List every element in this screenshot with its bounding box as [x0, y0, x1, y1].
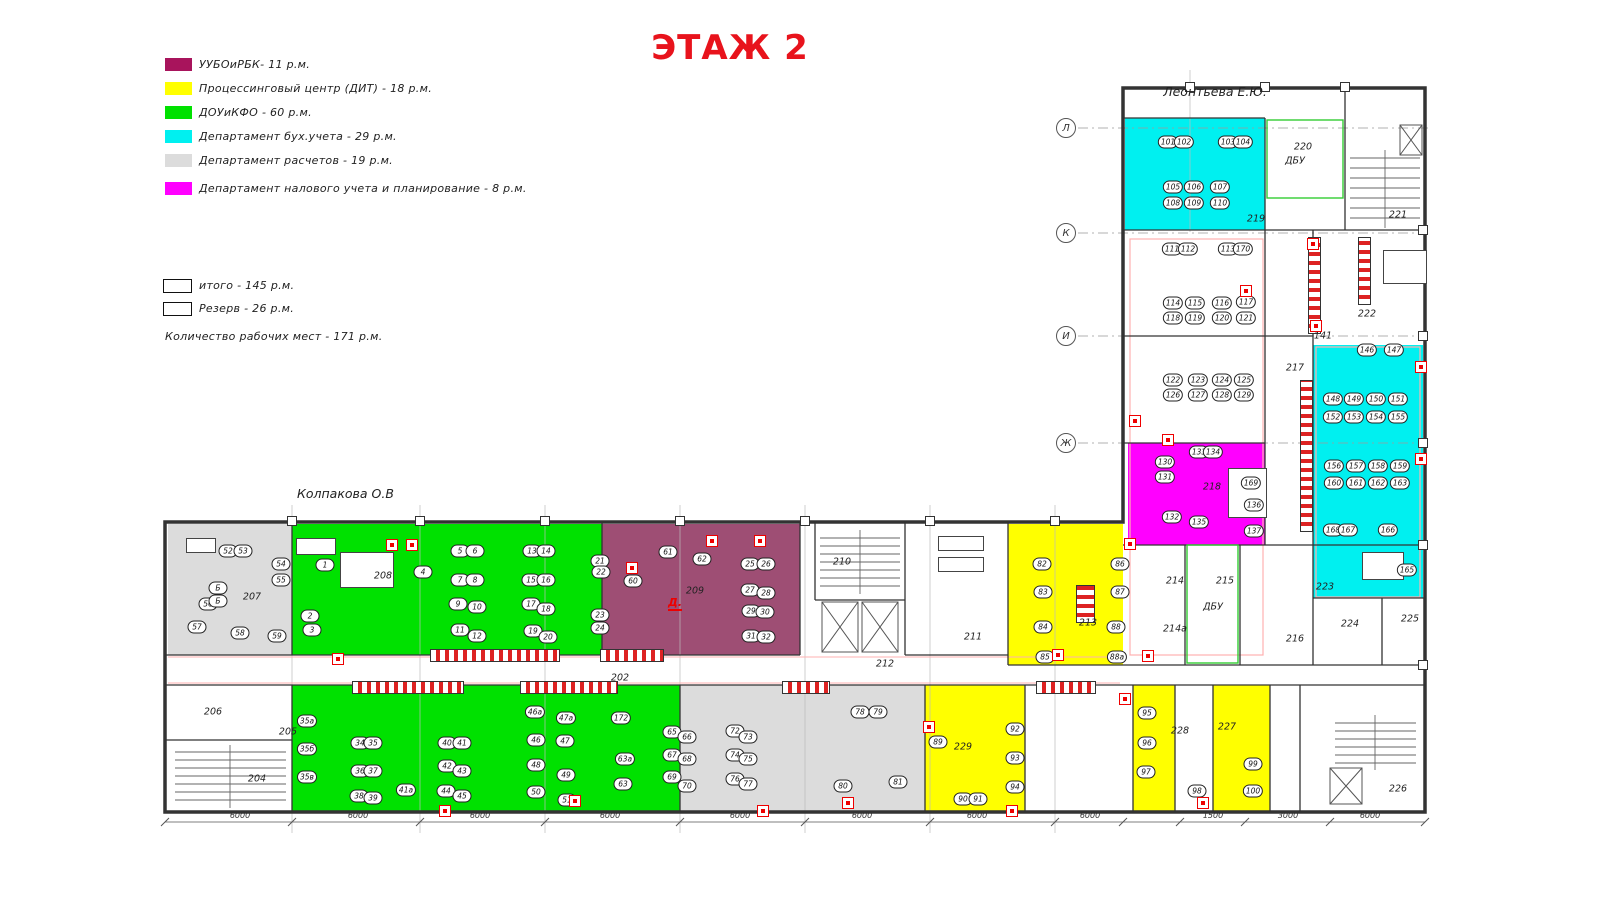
room-number-label: ДБУ — [1203, 602, 1223, 613]
workstation-61[interactable]: 61 — [659, 546, 678, 559]
legend-item: Департамент расчетов - 19 р.м. — [165, 148, 527, 172]
workstation-Б[interactable]: Б — [209, 595, 228, 608]
fire-extinguisher-icon — [757, 805, 769, 817]
workstation-47а[interactable]: 47а — [556, 712, 576, 725]
dimension-label: 6000 — [852, 811, 872, 820]
cabinet-strip — [352, 681, 464, 694]
workstation-104[interactable]: 104 — [1233, 136, 1253, 149]
dimension-label: 6000 — [1080, 811, 1100, 820]
fire-letter-label: Д. — [668, 596, 682, 611]
workstation-75[interactable]: 75 — [739, 753, 758, 766]
room-number-label: 222 — [1358, 309, 1376, 320]
workstation-154[interactable]: 154 — [1366, 411, 1386, 424]
fire-extinguisher-icon — [569, 795, 581, 807]
workstation-39[interactable]: 39 — [364, 792, 383, 805]
room-number-label: 211 — [964, 632, 982, 643]
workstation-49[interactable]: 49 — [557, 769, 576, 782]
room-number-label: 226 — [1389, 784, 1407, 795]
fire-extinguisher-icon — [923, 721, 935, 733]
workstation-114[interactable]: 114 — [1163, 297, 1183, 310]
workstation-41а[interactable]: 41а — [396, 784, 416, 797]
legend-swatch — [165, 82, 192, 95]
workstation-124[interactable]: 124 — [1212, 374, 1232, 387]
furniture — [186, 538, 216, 553]
column-marker — [925, 516, 935, 526]
workstation-96[interactable]: 96 — [1138, 737, 1157, 750]
column-marker — [1418, 438, 1428, 448]
workstation-77[interactable]: 77 — [739, 778, 758, 791]
fire-extinguisher-icon — [1006, 805, 1018, 817]
workstation-43[interactable]: 43 — [453, 765, 472, 778]
legend-item: Департамент налового учета и планировани… — [165, 176, 527, 200]
room-number-label: 207 — [243, 592, 261, 603]
workstation-70[interactable]: 70 — [678, 780, 697, 793]
workstation-121[interactable]: 121 — [1236, 312, 1256, 325]
workstation-62[interactable]: 62 — [693, 553, 712, 566]
legend-swatch — [165, 182, 192, 195]
summary-swatch — [163, 302, 192, 316]
dimension-label: 6000 — [348, 811, 368, 820]
workstation-100[interactable]: 100 — [1243, 785, 1263, 798]
workstation-35б[interactable]: 35б — [297, 743, 317, 756]
workstation-68[interactable]: 68 — [678, 753, 697, 766]
workstation-45[interactable]: 45 — [453, 790, 472, 803]
legend-swatch — [165, 58, 192, 71]
dimension-label: 6000 — [730, 811, 750, 820]
summary-legend: итого - 145 р.м.Резерв - 26 р.м. — [163, 274, 294, 320]
dimension-label: 6000 — [230, 811, 250, 820]
room-number-label: 223 — [1316, 582, 1334, 593]
room-number-label: 216 — [1286, 634, 1304, 645]
dimension-label: 1500 — [1203, 811, 1223, 820]
workstation-80[interactable]: 80 — [834, 780, 853, 793]
page-title: ЭТАЖ 2 — [600, 28, 860, 68]
room-number-label: 215 — [1216, 576, 1234, 587]
workstation-87[interactable]: 87 — [1111, 586, 1130, 599]
workstation-119[interactable]: 119 — [1185, 312, 1205, 325]
workstation-123[interactable]: 123 — [1188, 374, 1208, 387]
fire-extinguisher-icon — [1124, 538, 1136, 550]
column-marker — [675, 516, 685, 526]
room-number-label: 214а — [1163, 624, 1187, 635]
column-marker — [1418, 225, 1428, 235]
room-number-label: 228 — [1171, 726, 1189, 737]
workstation-35в[interactable]: 35в — [297, 771, 317, 784]
room-number-label: 212 — [876, 659, 894, 670]
summary-swatch — [163, 279, 192, 293]
room-number-label: 229 — [954, 742, 972, 753]
summary-label: итого - 145 р.м. — [199, 279, 294, 292]
workstation-35[interactable]: 35 — [364, 737, 383, 750]
workstation-146[interactable]: 146 — [1357, 344, 1377, 357]
fire-extinguisher-icon — [1415, 453, 1427, 465]
workstation-167[interactable]: 167 — [1338, 524, 1358, 537]
workstation-2[interactable]: 2 — [301, 610, 320, 623]
workstation-88[interactable]: 88 — [1107, 621, 1126, 634]
workstation-158[interactable]: 158 — [1368, 460, 1388, 473]
workstation-60[interactable]: 60 — [624, 575, 643, 588]
workstation-147[interactable]: 147 — [1384, 344, 1404, 357]
workstation-159[interactable]: 159 — [1390, 460, 1410, 473]
workstation-41[interactable]: 41 — [453, 737, 472, 750]
workstation-91[interactable]: 91 — [969, 793, 988, 806]
workstation-130[interactable]: 130 — [1155, 456, 1175, 469]
workstation-169[interactable]: 169 — [1241, 477, 1261, 490]
cabinet-strip — [1036, 681, 1096, 694]
workstation-3[interactable]: 3 — [303, 624, 322, 637]
room-number-label: 220 — [1294, 142, 1312, 153]
workstation-172[interactable]: 172 — [611, 712, 631, 725]
workstation-78[interactable]: 78 — [851, 706, 870, 719]
workstation-157[interactable]: 157 — [1346, 460, 1366, 473]
workstation-63а[interactable]: 63а — [615, 753, 635, 766]
workstation-26[interactable]: 26 — [757, 558, 776, 571]
legend-label: УУБОиРБК- 11 р.м. — [199, 58, 310, 71]
workstation-127[interactable]: 127 — [1188, 389, 1208, 402]
workstation-35а[interactable]: 35а — [297, 715, 317, 728]
fire-extinguisher-icon — [386, 539, 398, 551]
room-number-label: 204 — [248, 774, 266, 785]
workstation-48[interactable]: 48 — [527, 759, 546, 772]
workstation-12[interactable]: 12 — [468, 630, 487, 643]
cabinet-strip — [430, 649, 560, 662]
fire-extinguisher-icon — [1142, 650, 1154, 662]
workstation-155[interactable]: 155 — [1388, 411, 1408, 424]
furniture — [938, 536, 984, 551]
room-number-label: 225 — [1401, 614, 1419, 625]
workstation-89[interactable]: 89 — [929, 736, 948, 749]
grid-axis-Ж: Ж — [1056, 433, 1076, 453]
room-number-label: 214 — [1166, 576, 1184, 587]
workstation-152[interactable]: 152 — [1323, 411, 1343, 424]
column-marker — [287, 516, 297, 526]
workstation-128[interactable]: 128 — [1212, 389, 1232, 402]
workstation-81[interactable]: 81 — [889, 776, 908, 789]
column-marker — [1418, 540, 1428, 550]
workstation-148[interactable]: 148 — [1323, 393, 1343, 406]
legend-label: ДОУиКФО - 60 р.м. — [199, 106, 312, 119]
room-number-label: 210 — [833, 557, 851, 568]
room-number-label: 205 — [279, 727, 297, 738]
column-marker — [1050, 516, 1060, 526]
workstation-50[interactable]: 50 — [527, 786, 546, 799]
workstation-55[interactable]: 55 — [272, 574, 291, 587]
furniture — [1383, 250, 1427, 284]
legend-label: Департамент налового учета и планировани… — [199, 182, 527, 195]
workstation-57[interactable]: 57 — [188, 621, 207, 634]
room-number-label: 218 — [1203, 482, 1221, 493]
dimension-label: 6000 — [967, 811, 987, 820]
workstation-98[interactable]: 98 — [1188, 785, 1207, 798]
fire-extinguisher-icon — [842, 797, 854, 809]
cabinet-strip — [600, 649, 664, 662]
workstation-112[interactable]: 112 — [1178, 243, 1198, 256]
fire-extinguisher-icon — [1310, 320, 1322, 332]
summary-label: Резерв - 26 р.м. — [199, 302, 294, 315]
room-number-label: 219 — [1247, 214, 1265, 225]
workstation-132[interactable]: 132 — [1162, 511, 1182, 524]
column-marker — [415, 516, 425, 526]
fire-extinguisher-icon — [754, 535, 766, 547]
fire-extinguisher-icon — [1052, 649, 1064, 661]
workstation-9[interactable]: 9 — [449, 598, 468, 611]
fire-extinguisher-icon — [1197, 797, 1209, 809]
workstation-37[interactable]: 37 — [364, 765, 383, 778]
workstation-110[interactable]: 110 — [1210, 197, 1230, 210]
workstation-107[interactable]: 107 — [1210, 181, 1230, 194]
workstation-99[interactable]: 99 — [1244, 758, 1263, 771]
grid-axis-Л: Л — [1056, 118, 1076, 138]
workstation-151[interactable]: 151 — [1388, 393, 1408, 406]
cabinet-strip — [1300, 380, 1313, 532]
workstation-47[interactable]: 47 — [556, 735, 575, 748]
fire-extinguisher-icon — [332, 653, 344, 665]
fire-extinguisher-icon — [706, 535, 718, 547]
workstation-122[interactable]: 122 — [1163, 374, 1183, 387]
workstation-166[interactable]: 166 — [1378, 524, 1398, 537]
workstation-95[interactable]: 95 — [1138, 707, 1157, 720]
grid-axis-К: К — [1056, 223, 1076, 243]
workstation-94[interactable]: 94 — [1006, 781, 1025, 794]
workstation-118[interactable]: 118 — [1163, 312, 1183, 325]
room-number-label: 217 — [1286, 363, 1304, 374]
owner-label-top: Леонтьева Е.Ю. — [1130, 84, 1300, 99]
legend-label: Департамент бух.учета - 29 р.м. — [199, 130, 397, 143]
workstation-105[interactable]: 105 — [1163, 181, 1183, 194]
workstation-4[interactable]: 4 — [414, 566, 433, 579]
workstation-170[interactable]: 170 — [1233, 243, 1253, 256]
cabinet-strip — [520, 681, 618, 694]
workstation-136[interactable]: 136 — [1244, 499, 1264, 512]
fire-extinguisher-icon — [1307, 238, 1319, 250]
fire-extinguisher-icon — [1129, 415, 1141, 427]
room-number-label: 208 — [374, 571, 392, 582]
workstation-116[interactable]: 116 — [1212, 297, 1232, 310]
workstation-18[interactable]: 18 — [537, 603, 556, 616]
column-marker — [540, 516, 550, 526]
room-number-label: 202 — [611, 673, 629, 684]
workstation-149[interactable]: 149 — [1344, 393, 1364, 406]
cabinet-strip — [1358, 237, 1371, 305]
workstation-115[interactable]: 115 — [1185, 297, 1205, 310]
workstation-8[interactable]: 8 — [466, 574, 485, 587]
workstation-46[interactable]: 46 — [527, 734, 546, 747]
workstation-108[interactable]: 108 — [1163, 197, 1183, 210]
fire-extinguisher-icon — [1162, 434, 1174, 446]
legend-item: Департамент бух.учета - 29 р.м. — [165, 124, 527, 148]
workstation-162[interactable]: 162 — [1368, 477, 1388, 490]
workstation-32[interactable]: 32 — [757, 631, 776, 644]
workstation-10[interactable]: 10 — [468, 601, 487, 614]
workstation-23[interactable]: 23 — [591, 609, 610, 622]
workstation-131[interactable]: 131 — [1155, 471, 1175, 484]
workstation-161[interactable]: 161 — [1346, 477, 1366, 490]
workstation-59[interactable]: 59 — [268, 630, 287, 643]
workstation-150[interactable]: 150 — [1366, 393, 1386, 406]
workstation-120[interactable]: 120 — [1212, 312, 1232, 325]
workstation-63[interactable]: 63 — [614, 778, 633, 791]
room-number-label: 213 — [1079, 618, 1097, 629]
room-number-label: 221 — [1389, 210, 1407, 221]
workstation-79[interactable]: 79 — [869, 706, 888, 719]
legend-item: Процессинговый центр (ДИТ) - 18 р.м. — [165, 76, 527, 100]
workstation-54[interactable]: 54 — [272, 558, 291, 571]
column-marker — [1418, 660, 1428, 670]
room-number-label: ДБУ — [1285, 156, 1305, 167]
fire-extinguisher-icon — [1415, 361, 1427, 373]
dimension-label: 6000 — [600, 811, 620, 820]
room-number-label: 141 — [1314, 331, 1332, 342]
column-marker — [800, 516, 810, 526]
owner-label-left: Колпакова О.В — [297, 486, 394, 501]
workstation-126[interactable]: 126 — [1163, 389, 1183, 402]
workstation-97[interactable]: 97 — [1137, 766, 1156, 779]
floor-plan-canvas: 2072082092102112122132022042052062292282… — [0, 0, 1600, 900]
legend-label: Процессинговый центр (ДИТ) - 18 р.м. — [199, 82, 432, 95]
grid-axis-И: И — [1056, 326, 1076, 346]
total-workplaces-label: Количество рабочих мест - 171 р.м. — [165, 330, 383, 343]
room-number-label: 227 — [1218, 722, 1236, 733]
workstation-106[interactable]: 106 — [1184, 181, 1204, 194]
workstation-92[interactable]: 92 — [1006, 723, 1025, 736]
room-number-label: 224 — [1341, 619, 1359, 630]
workstation-30[interactable]: 30 — [756, 606, 775, 619]
fire-extinguisher-icon — [626, 562, 638, 574]
workstation-163[interactable]: 163 — [1390, 477, 1410, 490]
workstation-134[interactable]: 134 — [1203, 446, 1223, 459]
workstation-153[interactable]: 153 — [1344, 411, 1364, 424]
workstation-58[interactable]: 58 — [231, 627, 250, 640]
dimension-label: 3000 — [1278, 811, 1298, 820]
workstation-156[interactable]: 156 — [1324, 460, 1344, 473]
column-marker — [1340, 82, 1350, 92]
workstation-24[interactable]: 24 — [591, 622, 610, 635]
workstation-1[interactable]: 1 — [316, 559, 335, 572]
fire-extinguisher-icon — [406, 539, 418, 551]
legend: УУБОиРБК- 11 р.м.Процессинговый центр (Д… — [165, 52, 527, 200]
room-number-label: 206 — [204, 707, 222, 718]
workstation-129[interactable]: 129 — [1234, 389, 1254, 402]
column-marker — [1418, 331, 1428, 341]
workstation-125[interactable]: 125 — [1234, 374, 1254, 387]
cabinet-strip — [782, 681, 830, 694]
legend-swatch — [165, 106, 192, 119]
room-number-label: 209 — [686, 586, 704, 597]
workstation-66[interactable]: 66 — [678, 731, 697, 744]
dimension-label: 6000 — [470, 811, 490, 820]
workstation-6[interactable]: 6 — [466, 545, 485, 558]
workstation-14[interactable]: 14 — [537, 545, 556, 558]
furniture — [938, 557, 984, 572]
fire-extinguisher-icon — [1240, 285, 1252, 297]
workstation-137[interactable]: 137 — [1244, 525, 1264, 538]
workstation-20[interactable]: 20 — [539, 631, 558, 644]
legend-swatch — [165, 130, 192, 143]
workstation-83[interactable]: 83 — [1034, 586, 1053, 599]
workstation-165[interactable]: 165 — [1397, 564, 1417, 577]
fire-extinguisher-icon — [439, 805, 451, 817]
workstation-86[interactable]: 86 — [1111, 558, 1130, 571]
summary-item: итого - 145 р.м. — [163, 274, 294, 297]
furniture — [296, 538, 336, 555]
workstation-160[interactable]: 160 — [1324, 477, 1344, 490]
workstation-109[interactable]: 109 — [1184, 197, 1204, 210]
workstation-135[interactable]: 135 — [1189, 516, 1209, 529]
workstation-22[interactable]: 22 — [592, 566, 611, 579]
fire-extinguisher-icon — [1119, 693, 1131, 705]
legend-label: Департамент расчетов - 19 р.м. — [199, 154, 393, 167]
legend-item: ДОУиКФО - 60 р.м. — [165, 100, 527, 124]
workstation-Б[interactable]: Б — [209, 582, 228, 595]
workstation-88а[interactable]: 88а — [1107, 651, 1127, 664]
workstation-84[interactable]: 84 — [1034, 621, 1053, 634]
workstation-46а[interactable]: 46а — [525, 706, 545, 719]
workstation-28[interactable]: 28 — [757, 587, 776, 600]
legend-item: УУБОиРБК- 11 р.м. — [165, 52, 527, 76]
dimension-label: 6000 — [1360, 811, 1380, 820]
workstation-82[interactable]: 82 — [1033, 558, 1052, 571]
workstation-16[interactable]: 16 — [537, 574, 556, 587]
workstation-73[interactable]: 73 — [739, 731, 758, 744]
workstation-117[interactable]: 117 — [1236, 296, 1256, 309]
workstation-93[interactable]: 93 — [1006, 752, 1025, 765]
workstation-102[interactable]: 102 — [1174, 136, 1194, 149]
legend-swatch — [165, 154, 192, 167]
workstation-53[interactable]: 53 — [234, 545, 253, 558]
summary-item: Резерв - 26 р.м. — [163, 297, 294, 320]
